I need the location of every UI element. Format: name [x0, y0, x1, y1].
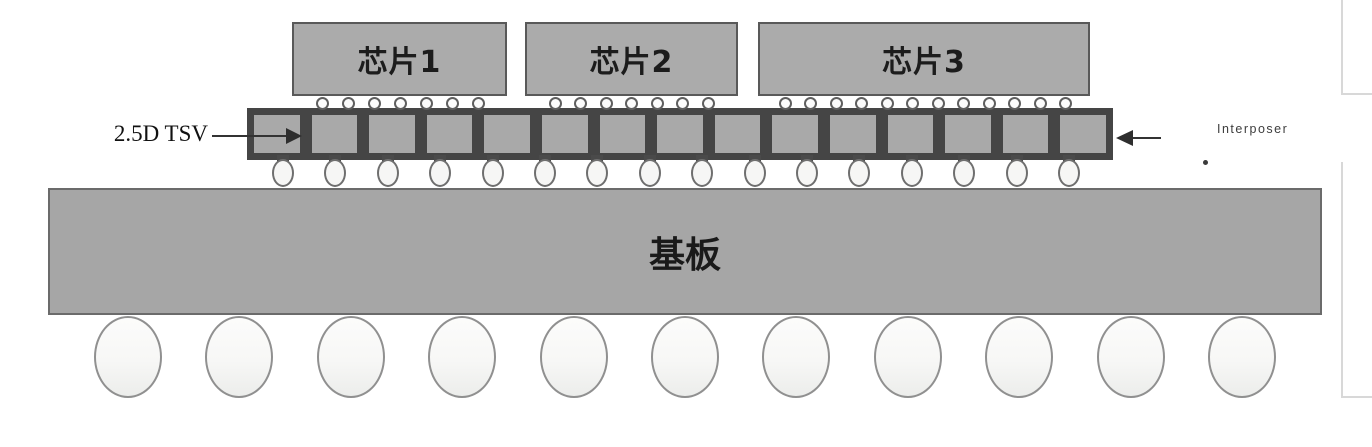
c4-bump: [324, 159, 346, 187]
chip-3-label: 芯片3: [882, 37, 966, 81]
tsv-cell: [888, 115, 934, 153]
microbump: [1059, 97, 1072, 110]
tsv-cell: [427, 115, 473, 153]
chip-2-label: 芯片2: [590, 37, 674, 81]
microbump: [472, 97, 485, 110]
microbump: [342, 97, 355, 110]
microbump: [830, 97, 843, 110]
microbump: [804, 97, 817, 110]
chip-3: 芯片3: [758, 22, 1090, 96]
microbump: [368, 97, 381, 110]
tsv-cell: [542, 115, 588, 153]
stray-dot: [1203, 160, 1208, 165]
tsv-callout-arrow-line: [212, 135, 288, 137]
c4-bump: [744, 159, 766, 187]
bga-ball: [317, 316, 385, 398]
tsv-cell: [945, 115, 991, 153]
tsv-cell: [1003, 115, 1049, 153]
substrate-label: 基板: [649, 226, 721, 278]
c4-bump: [429, 159, 451, 187]
microbump: [651, 97, 664, 110]
microbump: [1034, 97, 1047, 110]
microbump: [549, 97, 562, 110]
tsv-cell: [830, 115, 876, 153]
c4-bump: [1006, 159, 1028, 187]
tsv-cell: [484, 115, 530, 153]
microbump: [574, 97, 587, 110]
c4-bump: [482, 159, 504, 187]
microbump: [932, 97, 945, 110]
right-panel-edge-bottom-horizontal: [1341, 396, 1372, 398]
bga-ball: [1097, 316, 1165, 398]
microbump: [957, 97, 970, 110]
c4-bump: [586, 159, 608, 187]
interposer-body: [247, 108, 1113, 160]
tsv-cell: [369, 115, 415, 153]
microbump: [625, 97, 638, 110]
microbump: [1008, 97, 1021, 110]
microbump: [779, 97, 792, 110]
tsv-callout-arrowhead-icon: [286, 128, 302, 144]
microbump: [906, 97, 919, 110]
bga-ball: [540, 316, 608, 398]
microbump: [316, 97, 329, 110]
microbump: [446, 97, 459, 110]
chip-1-label: 芯片1: [358, 37, 442, 81]
tsv-cell: [772, 115, 818, 153]
tsv-cell: [600, 115, 646, 153]
tsv-cell: [657, 115, 703, 153]
tsv-cell: [715, 115, 761, 153]
c4-bump: [639, 159, 661, 187]
bga-ball: [94, 316, 162, 398]
bga-ball: [1208, 316, 1276, 398]
bga-ball: [428, 316, 496, 398]
tsv-cell: [312, 115, 358, 153]
c4-bump: [901, 159, 923, 187]
tsv-callout-label: 2.5D TSV: [60, 121, 208, 147]
microbump: [855, 97, 868, 110]
right-panel-edge-top-horizontal: [1341, 93, 1372, 95]
bga-ball: [985, 316, 1053, 398]
microbump: [702, 97, 715, 110]
right-panel-edge-top-vertical: [1341, 0, 1343, 94]
bga-ball: [205, 316, 273, 398]
microbump: [676, 97, 689, 110]
bga-ball: [874, 316, 942, 398]
microbump: [420, 97, 433, 110]
microbump: [600, 97, 613, 110]
c4-bump: [272, 159, 294, 187]
c4-bump: [953, 159, 975, 187]
microbump: [394, 97, 407, 110]
c4-bump: [534, 159, 556, 187]
bga-ball: [762, 316, 830, 398]
chip-2: 芯片2: [525, 22, 738, 96]
microbump: [881, 97, 894, 110]
right-panel-edge-bottom-vertical: [1341, 162, 1343, 398]
tsv-cell: [1060, 115, 1106, 153]
c4-bump: [377, 159, 399, 187]
bga-ball: [651, 316, 719, 398]
interposer-callout-label: Interposer: [1217, 122, 1288, 136]
c4-bump: [848, 159, 870, 187]
microbump: [983, 97, 996, 110]
c4-bump: [796, 159, 818, 187]
chip-1: 芯片1: [292, 22, 507, 96]
diagram-canvas: 芯片1 芯片2 芯片3 基板 2.5D TSV Interposer: [0, 0, 1372, 447]
interposer-callout-arrowhead-icon: [1116, 130, 1133, 146]
interposer-callout-arrow-line: [1133, 137, 1161, 139]
c4-bump: [1058, 159, 1080, 187]
substrate: 基板: [48, 188, 1322, 315]
c4-bump: [691, 159, 713, 187]
